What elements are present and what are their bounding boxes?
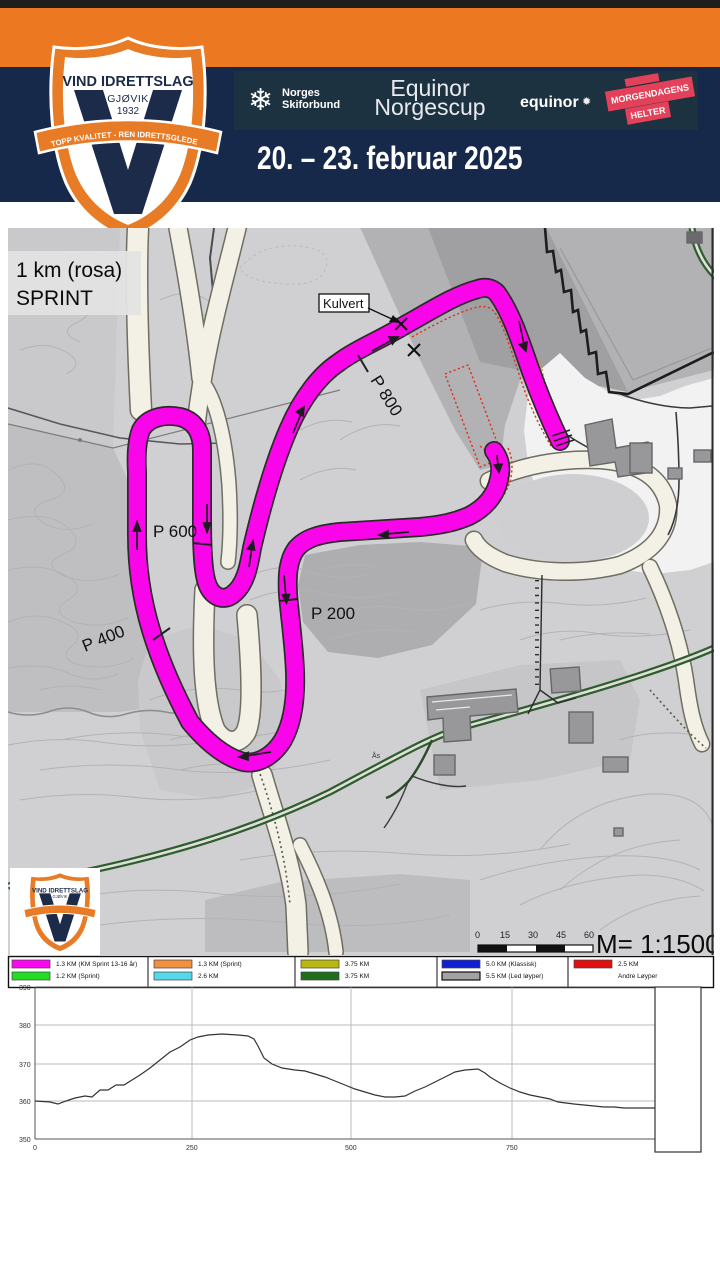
svg-text:750: 750: [506, 1145, 518, 1152]
svg-text:45: 45: [556, 930, 566, 940]
svg-text:370: 370: [19, 1062, 31, 1069]
svg-text:60: 60: [584, 930, 594, 940]
svg-text:1.3 KM (KM Sprint 13-16 år): 1.3 KM (KM Sprint 13-16 år): [56, 960, 137, 968]
svg-text:360: 360: [19, 1099, 31, 1106]
svg-text:1 km (rosa): 1 km (rosa): [16, 259, 122, 282]
svg-text:390: 390: [19, 985, 31, 992]
svg-text:M= 1:1500: M= 1:1500: [596, 929, 714, 955]
svg-text:2.5 KM: 2.5 KM: [618, 961, 639, 968]
svg-text:GJØVIK: GJØVIK: [53, 894, 68, 899]
svg-text:GJØVIK: GJØVIK: [107, 93, 149, 105]
svg-text:500: 500: [345, 1145, 357, 1152]
svg-text:0: 0: [475, 930, 480, 940]
svg-text:3.75 KM: 3.75 KM: [345, 961, 369, 968]
svg-text:1.3 KM (Sprint): 1.3 KM (Sprint): [198, 961, 242, 968]
svg-text:P 200: P 200: [311, 604, 355, 623]
svg-text:1.2 KM (Sprint): 1.2 KM (Sprint): [56, 973, 100, 980]
svg-text:3.75 KM: 3.75 KM: [345, 973, 369, 980]
svg-text:1932: 1932: [117, 106, 140, 117]
svg-text:P 600: P 600: [153, 522, 197, 541]
svg-text:250: 250: [186, 1145, 198, 1152]
svg-text:2.6 KM: 2.6 KM: [198, 973, 219, 980]
svg-text:380: 380: [19, 1023, 31, 1030]
svg-text:Ås: Ås: [372, 751, 381, 760]
svg-text:VIND IDRETTSLAG: VIND IDRETTSLAG: [62, 74, 193, 90]
svg-text:Andre Løyper: Andre Løyper: [618, 973, 658, 980]
svg-text:5.0 KM (Klassisk): 5.0 KM (Klassisk): [486, 961, 537, 968]
svg-text:30: 30: [528, 930, 538, 940]
svg-text:15: 15: [500, 930, 510, 940]
svg-text:5.5 KM (Led løyper): 5.5 KM (Led løyper): [486, 973, 543, 980]
svg-text:SPRINT: SPRINT: [16, 287, 93, 310]
svg-text:0: 0: [33, 1145, 37, 1152]
svg-text:350: 350: [19, 1137, 31, 1144]
svg-text:Kulvert: Kulvert: [323, 296, 364, 311]
